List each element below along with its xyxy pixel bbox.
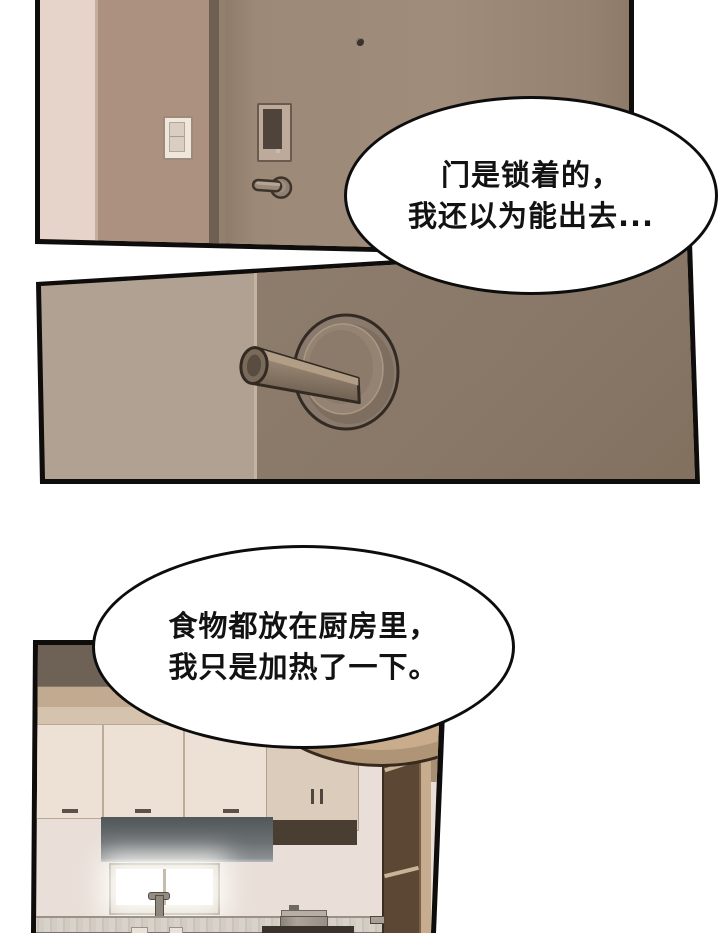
bubble-1-line-1: 门是锁着的， [441,155,621,196]
bubble-2-line-2: 我只是加热了一下。 [168,647,438,688]
cabinet-handle [62,809,78,813]
kitchen-door [382,745,421,933]
cabinet-divider [102,725,104,818]
counter-item [169,927,183,933]
counter-item [131,927,148,933]
cabinet-handle-vertical [311,789,314,804]
light-switch [163,116,193,160]
kitchen-window [109,863,220,915]
stove-front [262,926,354,933]
peephole-icon [356,38,364,46]
rocker-divider [170,136,184,137]
speech-bubble-1: 门是锁着的， 我还以为能出去... [344,96,718,295]
kitchen-door-handle [370,916,385,924]
light-switch-rocker [169,122,185,152]
door-handle-small [250,170,294,204]
cabinet-handle-vertical [320,789,323,804]
cabinet-handle [135,809,151,813]
cabinet-handle [223,809,239,813]
keypad-button [276,149,280,153]
lever-handle-icon [236,292,416,442]
range-hood [101,817,273,862]
comic-page: 门是锁着的， 我还以为能出去... 食物都放在厨房里， 我只是加热了一下。 [0,0,720,933]
bubble-1-line-2: 我还以为能出去... [408,196,654,237]
speech-bubble-2: 食物都放在厨房里， 我只是加热了一下。 [92,545,515,749]
door-frame-dark [209,0,219,260]
keypad-lock [257,103,292,162]
keypad-screen [263,109,282,149]
shelf-dark-bar [273,820,357,845]
door-trim-highlight [384,866,419,878]
bubble-2-line-1: 食物都放在厨房里， [168,606,438,647]
cabinet-divider [183,725,185,818]
